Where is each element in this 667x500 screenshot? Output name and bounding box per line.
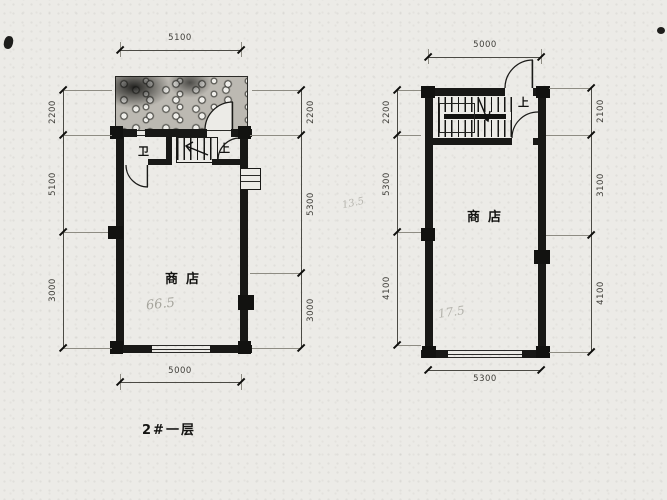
extension-line — [397, 90, 421, 91]
inner-wall — [425, 138, 512, 145]
dimension-line — [428, 57, 541, 58]
window-line — [152, 352, 210, 353]
extension-line — [63, 348, 112, 349]
dimension-label: 5300 — [306, 184, 316, 224]
window-line — [448, 357, 522, 358]
extension-line — [252, 348, 301, 349]
window-line — [448, 350, 522, 351]
wc-room-label: 卫 — [138, 143, 149, 159]
extension-line — [546, 235, 591, 236]
dimension-label: 5300 — [455, 374, 515, 384]
extension-line — [250, 273, 301, 274]
door-arc-icon — [505, 60, 533, 88]
stair-up-label: 上 — [518, 94, 529, 110]
room-label-shop: 商店 — [452, 206, 524, 225]
extension-line — [397, 345, 421, 346]
column-block — [421, 86, 435, 98]
dimension-label: 3100 — [596, 165, 606, 205]
dimension-line — [428, 370, 541, 371]
column-block — [534, 250, 550, 264]
extension-line — [63, 135, 112, 136]
window-sill-box — [240, 168, 261, 190]
dimension-label: 4100 — [382, 268, 392, 308]
column-block — [421, 228, 435, 241]
dimension-label: 5000 — [455, 40, 515, 50]
dimension-tick — [587, 348, 595, 356]
sheet-title: 2#一层 — [142, 419, 196, 438]
door-threshold-line — [137, 135, 145, 136]
dimension-line — [120, 382, 241, 383]
floor-plan-sheet: 卫 上 商店 66.5 5100 — [0, 0, 667, 500]
dimension-label: 2200 — [306, 92, 316, 132]
column-block — [238, 341, 251, 354]
extension-line — [397, 232, 421, 233]
scan-speck — [657, 27, 665, 34]
stair-direction-arrow — [178, 139, 212, 159]
dimension-line — [63, 90, 64, 348]
dimension-label: 2100 — [596, 91, 606, 131]
wall-left — [116, 129, 124, 353]
extension-line — [63, 90, 112, 91]
extension-line — [549, 88, 591, 89]
window-line — [152, 345, 210, 346]
extension-line — [549, 352, 591, 353]
window-line — [152, 349, 210, 350]
dimension-label: 5100 — [150, 33, 210, 43]
dimension-label: 3000 — [306, 290, 316, 330]
stair-direction-arrow — [472, 95, 494, 125]
handwritten-area-note: 17.5 — [437, 303, 465, 321]
dimension-label: 3000 — [48, 270, 58, 310]
inner-wall — [212, 159, 248, 165]
column-block — [110, 126, 123, 139]
wall-left — [425, 88, 433, 358]
extension-line — [250, 135, 301, 136]
dimension-label: 2200 — [48, 92, 58, 132]
column-block — [238, 295, 254, 310]
door-arc-icon — [126, 165, 148, 187]
door-arc-icon — [205, 102, 233, 130]
column-block — [422, 346, 436, 358]
handwritten-pencil-note: 13.5 — [341, 196, 365, 211]
dimension-line — [120, 50, 241, 51]
door-arc-icon — [512, 112, 538, 138]
door-arc-icon — [218, 138, 240, 160]
stair-landing-outline — [439, 103, 475, 133]
window-line — [448, 354, 522, 355]
dimension-label: 2200 — [382, 92, 392, 132]
wall-top-segment — [145, 129, 207, 137]
extension-line — [397, 135, 421, 136]
extension-line — [63, 232, 108, 233]
dimension-tick — [297, 344, 305, 352]
column-block — [536, 86, 550, 98]
dimension-line — [591, 88, 592, 352]
inner-wall — [533, 138, 546, 145]
handwritten-area-note: 66.5 — [145, 296, 175, 314]
wc-wall-bottom — [148, 159, 172, 165]
dimension-label: 5100 — [48, 164, 58, 204]
dimension-label: 5300 — [382, 164, 392, 204]
extension-line — [252, 90, 301, 91]
room-label-shop: 商店 — [150, 268, 222, 287]
dimension-line — [397, 90, 398, 345]
dimension-label: 5000 — [150, 366, 210, 376]
dimension-label: 4100 — [596, 273, 606, 313]
column-block — [536, 346, 550, 358]
wall-right — [538, 88, 546, 358]
extension-line — [546, 135, 591, 136]
scan-speck — [3, 35, 15, 50]
column-block — [108, 226, 123, 239]
dimension-tick — [537, 366, 545, 374]
dimension-line — [301, 90, 302, 348]
